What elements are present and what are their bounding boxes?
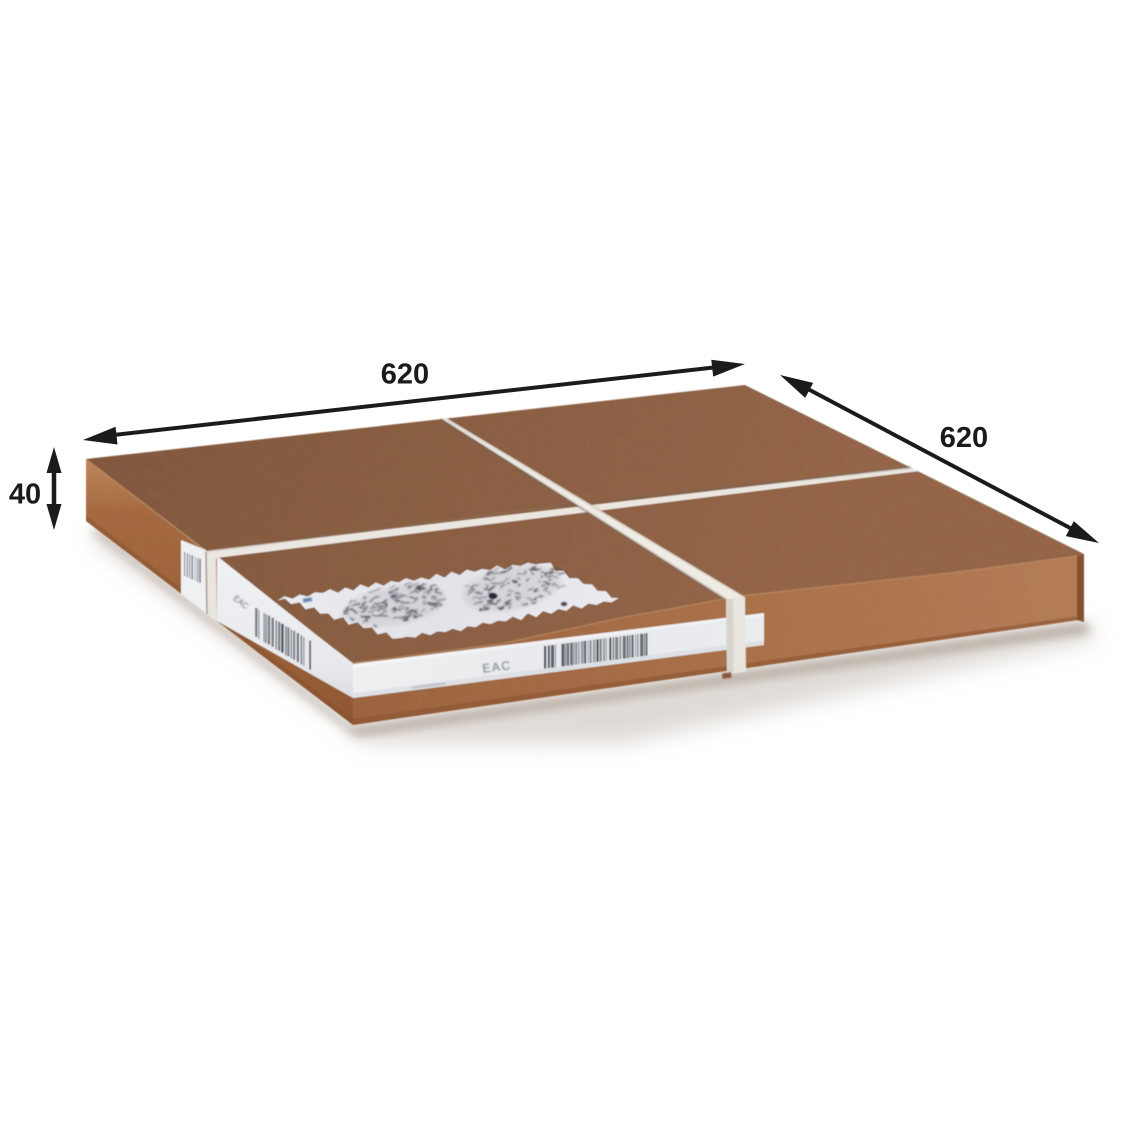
svg-text:620: 620	[381, 359, 429, 391]
svg-text:40: 40	[9, 479, 41, 511]
svg-text:620: 620	[940, 422, 988, 454]
